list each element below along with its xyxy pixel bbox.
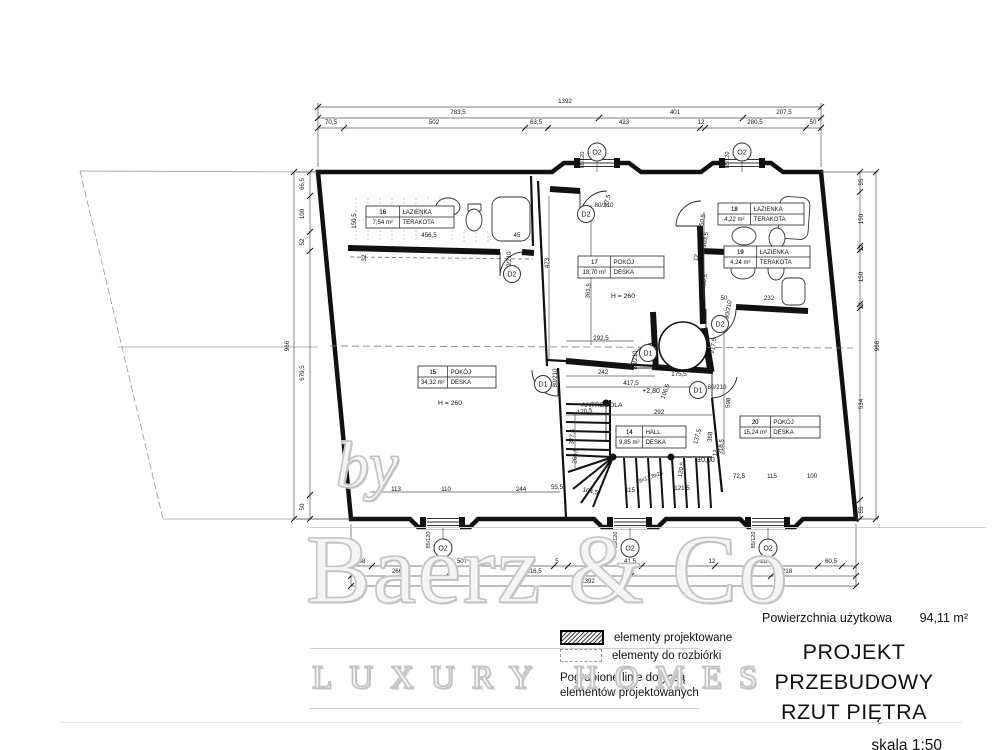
- toilet-icon: [769, 228, 785, 248]
- room-name: ŁAZIENKA: [402, 210, 431, 216]
- room-floor: DESKA: [773, 430, 793, 436]
- room-number: 19: [737, 250, 744, 256]
- room-floor: TERAKOTA: [754, 217, 786, 223]
- room-number: 18: [731, 207, 738, 213]
- dimension-label: 401: [670, 109, 681, 116]
- room-floor: TERAKOTA: [760, 260, 792, 266]
- dimension-label: 150: [858, 271, 865, 282]
- dimension-label: 207,5: [776, 109, 792, 116]
- dimension-label: 50: [299, 503, 306, 510]
- usable-area-value: 94,11 m²: [920, 611, 968, 625]
- dimension-label: 507: [457, 558, 468, 565]
- dimension-label: 292,5: [593, 335, 609, 342]
- title-block: Powierzchnia użytkowa 94,11 m² PROJEKT P…: [740, 611, 968, 750]
- project-title-line2: RZUT PIĘTRA: [740, 697, 968, 727]
- dimension-label: H = 260: [611, 293, 635, 300]
- dimension-label: 80/210: [632, 350, 639, 369]
- dimension-label: 100: [299, 208, 306, 219]
- dimension-label: 50: [810, 119, 817, 126]
- dimension-label: 115: [767, 473, 777, 480]
- dimension-label: 85/120: [580, 152, 586, 169]
- room-name: POKÓJ: [451, 369, 471, 376]
- room-number: 16: [379, 210, 386, 216]
- room-name: ŁAZIENKA: [754, 207, 783, 213]
- project-title-line1: PROJEKT PRZEBUDOWY: [740, 637, 968, 697]
- dimension-label: 361,5: [584, 282, 592, 299]
- legend-label-demolish: elementy do rozbiórki: [612, 650, 721, 662]
- dimension-label: 12: [698, 119, 705, 126]
- dimension-label: 110: [441, 486, 451, 493]
- dimension-label: 368: [707, 431, 715, 442]
- window-marker-label: O2: [438, 546, 447, 553]
- room-name: POKÓJ: [773, 419, 793, 426]
- dimension-label: 41,5: [624, 558, 637, 565]
- toilet-icon: [466, 209, 482, 231]
- dimension-label: 217,5: [709, 337, 719, 354]
- dimension-label: 150,5: [700, 273, 710, 290]
- drawing-page: 1392783,5401207,570,550263,542312280,550…: [0, 0, 1000, 750]
- dimension-label: 244: [516, 486, 527, 493]
- room-name: ŁAZIENKA: [760, 250, 789, 256]
- legend-row-new: elementy projektowane: [560, 630, 732, 645]
- dimension-label: 502: [429, 119, 440, 126]
- dimension-label: 377,5: [568, 428, 576, 445]
- dimension-label: 287,5: [760, 558, 776, 565]
- room-area: 7,54 m²: [373, 220, 393, 226]
- legend-label-new: elementy projektowane: [614, 632, 732, 644]
- dimension-label: 80/210: [552, 368, 559, 387]
- dimension-label: 423: [619, 119, 630, 126]
- dimension-lines: [294, 103, 878, 586]
- window-marker-label: O2: [763, 546, 772, 553]
- knee-wall-dashed-line: [330, 346, 853, 348]
- legend: elementy projektowane elementy do rozbió…: [560, 630, 732, 701]
- dimension-label: 55: [858, 178, 865, 185]
- dimension-label: 85/120: [751, 532, 757, 549]
- room-area: 4,24 m²: [730, 260, 750, 266]
- room-number: 17: [591, 260, 598, 266]
- room-number: 20: [752, 420, 759, 426]
- dimension-label: 60,5: [825, 558, 838, 565]
- dimension-label: 150: [858, 213, 865, 224]
- dimension-label: 391: [678, 568, 689, 575]
- door-marker-label: D1: [644, 351, 653, 358]
- chimney-circle: [659, 322, 707, 370]
- scale-label: skala 1:50: [740, 737, 968, 750]
- dimension-label: ±0,00: [697, 457, 715, 464]
- dimension-label: 32: [361, 254, 368, 261]
- door-marker-label: D2: [582, 212, 591, 219]
- dimension-label: 150,5: [351, 213, 358, 229]
- dimension-label: 473: [544, 257, 551, 268]
- room-floor: DESKA: [646, 440, 666, 446]
- room-name: HALL: [646, 430, 662, 436]
- dimension-label: 218: [782, 568, 793, 575]
- usable-area-label: Powierzchnia użytkowa: [762, 611, 892, 625]
- dimension-label: 175,5: [671, 371, 687, 378]
- dimension-label: 280,5: [747, 119, 763, 126]
- room-area: 15,24 m²: [743, 430, 767, 436]
- room-area: 34,32 m²: [421, 380, 445, 386]
- dimension-label: 66,5: [299, 177, 306, 190]
- dimension-label: 100: [807, 473, 818, 480]
- dimension-label: 55: [858, 506, 865, 513]
- dimension-label: 137,5: [692, 428, 703, 445]
- dimension-label: 264,5: [571, 447, 579, 464]
- dimension-label: 12: [858, 244, 865, 251]
- legend-row-demolish: elementy do rozbiórki: [560, 649, 732, 662]
- dimension-label: 150,5: [698, 213, 708, 230]
- dimension-label: 242: [598, 369, 609, 376]
- dimension-label: +2,80: [642, 388, 660, 395]
- dimension-label: 292: [654, 409, 665, 416]
- window-marker-label: O2: [625, 546, 634, 553]
- dimension-label: 598: [725, 397, 733, 408]
- legend-note-line2: elementów projektowanych: [560, 686, 732, 701]
- dimension-label: 113: [391, 486, 401, 493]
- dimension-label: 85/120: [725, 152, 731, 169]
- dimension-label: 115: [625, 487, 635, 494]
- dimension-label: 45: [514, 232, 521, 239]
- dashed-swatch-icon: [560, 649, 602, 662]
- dimension-label: 58: [359, 558, 366, 565]
- dimension-label: 1392: [581, 578, 595, 585]
- legend-note: Pogrubione linie dotyczą elementów proje…: [560, 671, 732, 701]
- shower-icon: [782, 278, 805, 305]
- room-name: POKÓJ: [614, 259, 634, 266]
- legend-note-line1: Pogrubione linie dotyczą: [560, 671, 732, 686]
- dimension-label: 1392: [558, 98, 572, 105]
- door-marker-label: D1: [694, 388, 703, 395]
- dimension-label: 783,5: [450, 109, 466, 116]
- usable-area-row: Powierzchnia użytkowa 94,11 m²: [762, 611, 968, 625]
- dimension-label: 679,5: [299, 365, 306, 381]
- room-area: 9,85 m²: [619, 440, 639, 446]
- room-floor: DESKA: [451, 380, 471, 386]
- dimension-label: 417,5: [623, 380, 639, 387]
- dimension-label: 456,5: [421, 232, 437, 239]
- room-number: 15: [429, 370, 436, 376]
- dimension-label: 63,5: [530, 119, 543, 126]
- dimension-label: 55,5: [551, 484, 564, 491]
- room-area: 18,70 m²: [582, 270, 606, 276]
- dimension-label: 104,5: [582, 486, 599, 496]
- window-marker-label: O2: [592, 150, 601, 157]
- dimension-label: 232: [764, 295, 775, 302]
- dimension-label: 516,5: [526, 568, 542, 575]
- dimension-label: 12: [709, 558, 716, 565]
- dimension-label: 534: [858, 398, 865, 409]
- door-marker-label: D1: [539, 382, 548, 389]
- dimension-label: 106,5: [660, 382, 672, 399]
- room-floor: DESKA: [614, 270, 634, 276]
- dimension-label: 12: [858, 302, 865, 309]
- door-marker-label: D2: [508, 272, 517, 279]
- dimension-label: 70,5: [325, 119, 338, 126]
- dimension-label: 85/120: [613, 532, 619, 549]
- room-floor: TERAKOTA: [402, 220, 434, 226]
- window-marker-label: O2: [737, 150, 746, 157]
- room-number: 14: [626, 430, 633, 436]
- dimension-label: H = 260: [438, 400, 462, 407]
- hatched-swatch-icon: [560, 630, 604, 645]
- dimension-label: 12: [712, 449, 720, 457]
- dimension-label: 103,5: [701, 231, 711, 248]
- sink-icon: [732, 227, 756, 245]
- room-area: 4,22 m²: [724, 217, 744, 223]
- dimension-label: 966: [874, 340, 881, 351]
- dimension-label: 266: [392, 568, 403, 575]
- dimension-label: 72,5: [733, 473, 746, 480]
- dimension-label: 52: [299, 238, 306, 245]
- dimension-label: 121,5: [674, 485, 690, 492]
- dimension-label: 85/120: [426, 532, 432, 549]
- bathtub-icon: [492, 197, 530, 241]
- dimension-label: 80/210: [708, 384, 727, 391]
- dimension-label: 5: [555, 558, 559, 565]
- door-marker-label: D2: [716, 322, 725, 329]
- dimension-label: 80/210: [595, 202, 614, 209]
- dimension-label: 966: [284, 340, 291, 351]
